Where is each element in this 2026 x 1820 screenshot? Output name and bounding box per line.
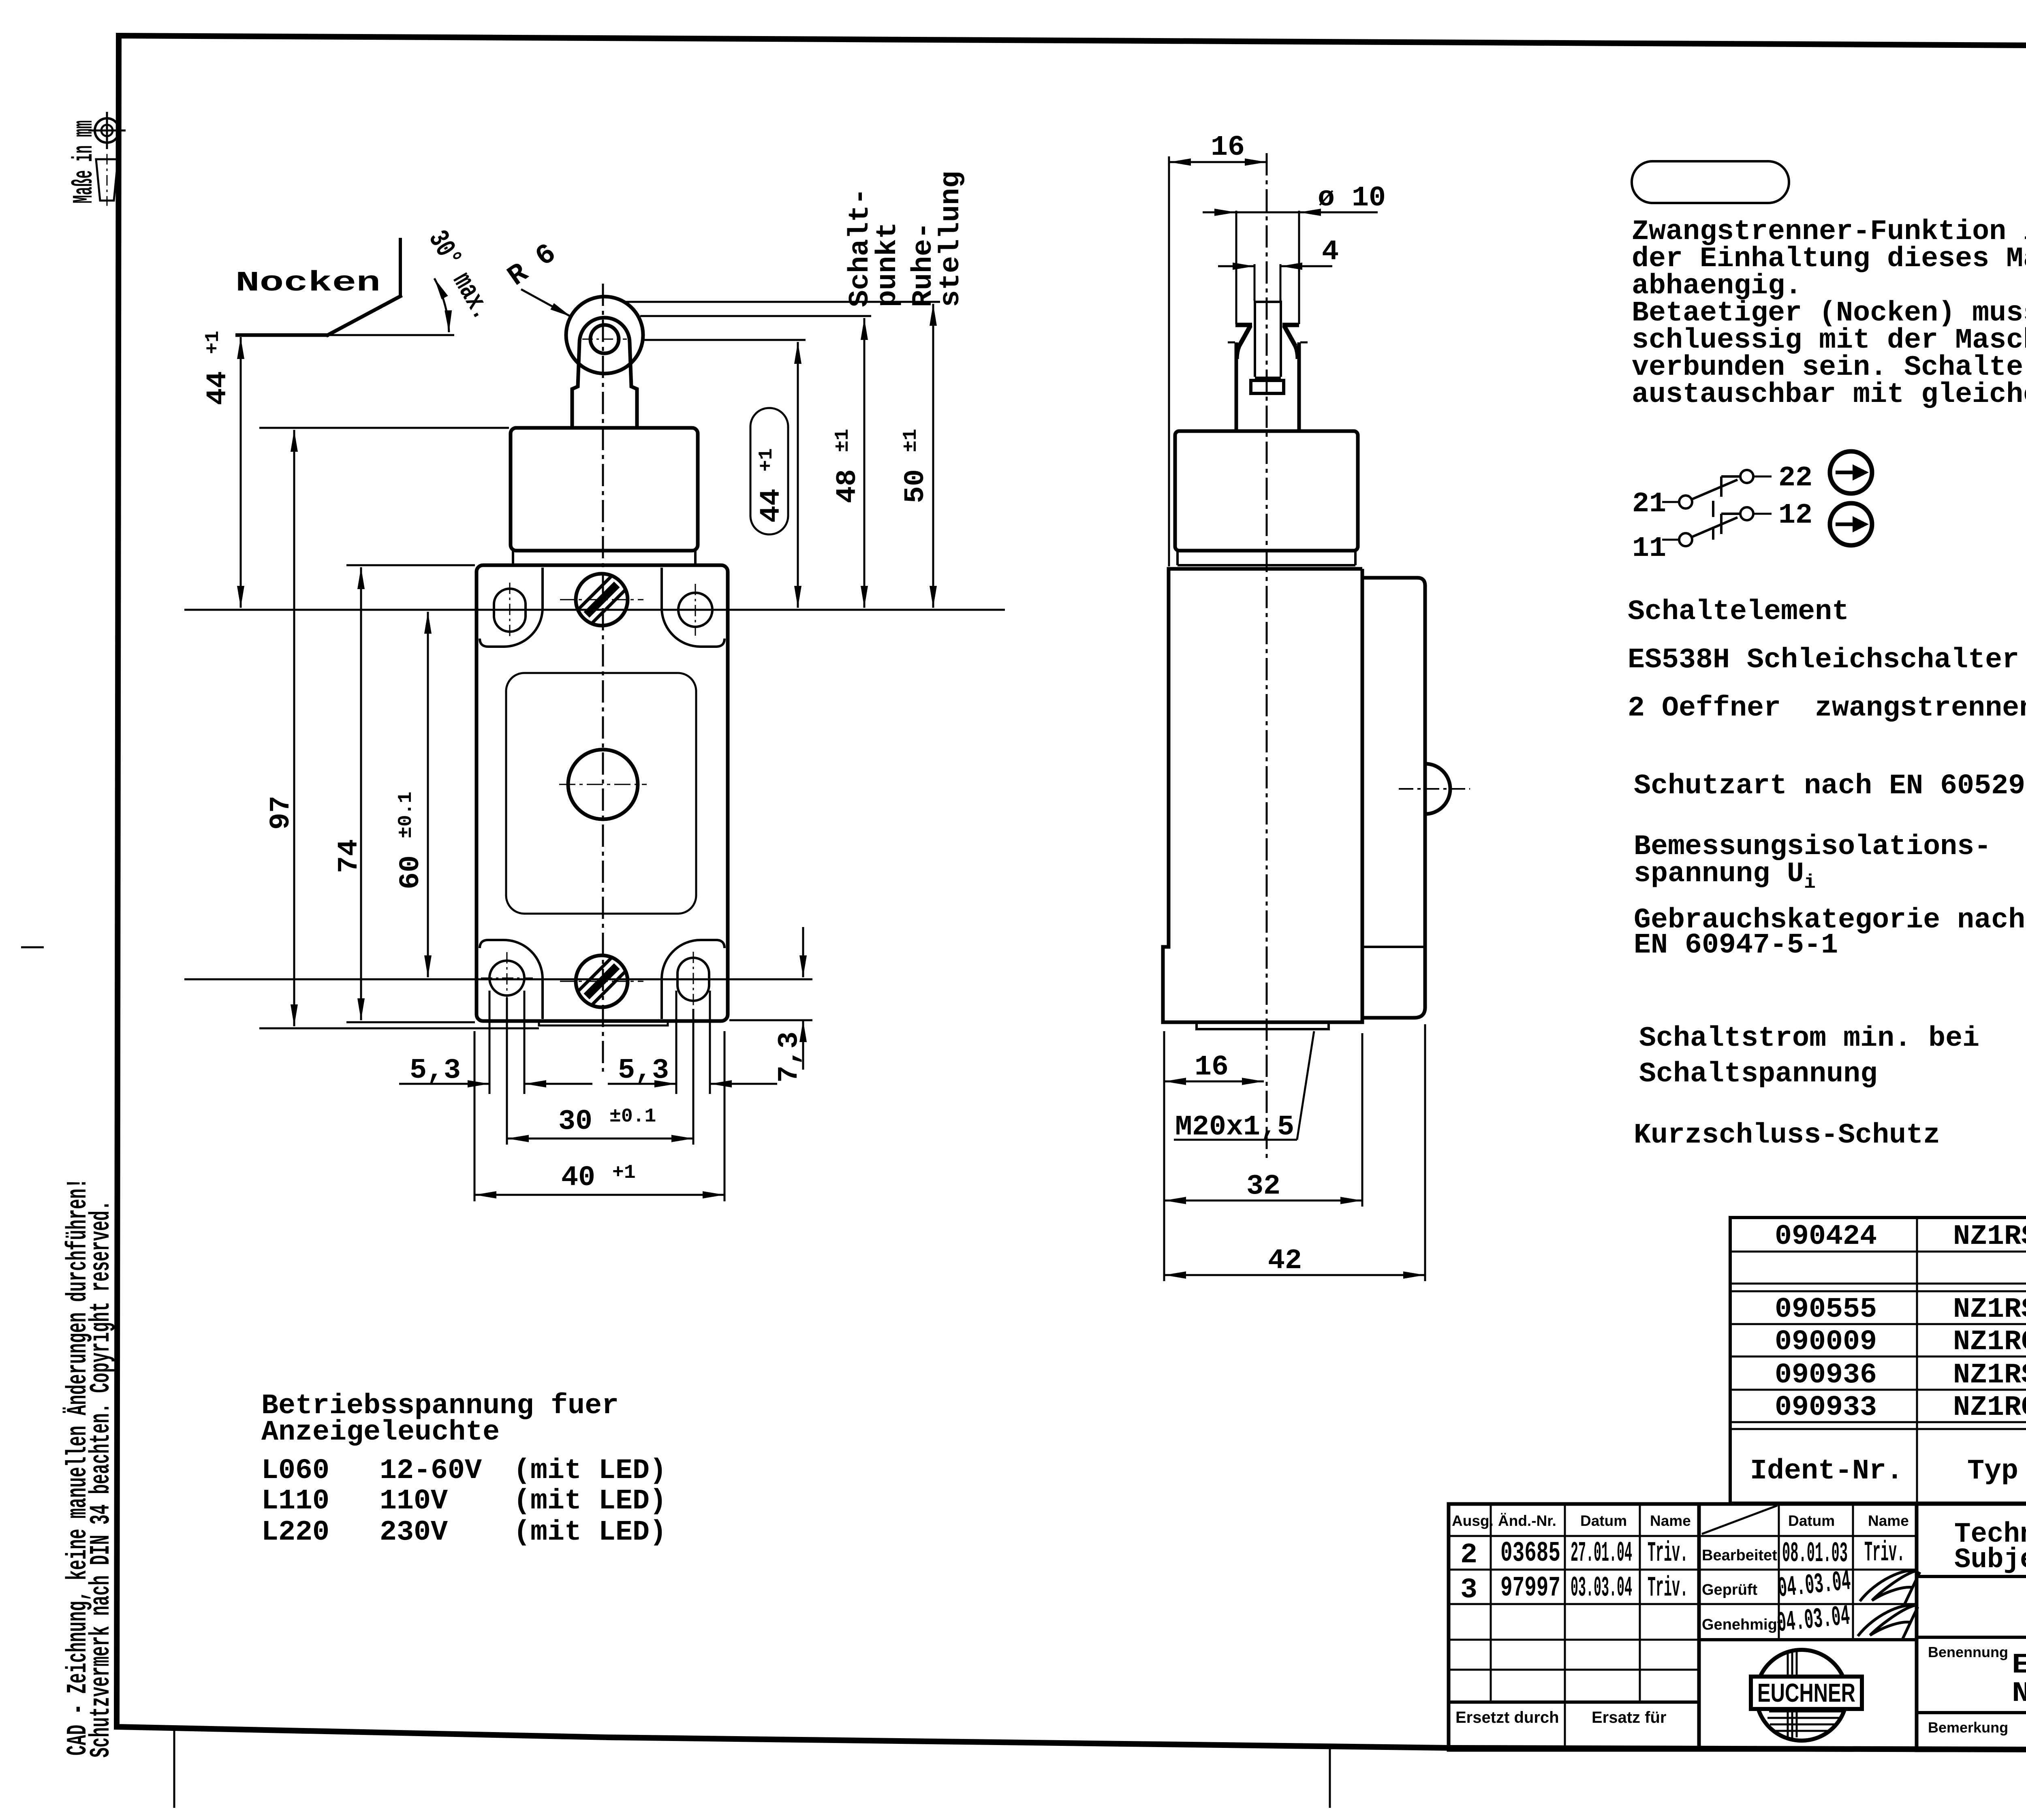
svg-text:Anzeigeleuchte: Anzeigeleuchte xyxy=(261,1416,500,1448)
svg-text:Triv.: Triv. xyxy=(1648,1572,1688,1604)
svg-text:NZ1RG-538-M: NZ1RG-538-M xyxy=(1953,1392,2026,1424)
svg-text:3: 3 xyxy=(1460,1574,1477,1606)
svg-text:ES538H Schleichschalter: ES538H Schleichschalter xyxy=(1628,644,2019,676)
svg-text:(mit LED): (mit LED) xyxy=(513,1485,667,1517)
svg-text:NZ1RG-538L060-M: NZ1RG-538L060-M xyxy=(1953,1326,2026,1358)
svg-text:EN 60947-5-1: EN 60947-5-1 xyxy=(1634,929,1838,961)
svg-text:97: 97 xyxy=(265,796,297,830)
svg-text:Schaltstrom min. bei: Schaltstrom min. bei xyxy=(1639,1023,1979,1055)
svg-text:Kurzschluss-Schutz: Kurzschluss-Schutz xyxy=(1634,1119,1940,1151)
svg-text:4: 4 xyxy=(1322,236,1339,268)
svg-text:Schaltspannung: Schaltspannung xyxy=(1639,1058,1877,1090)
svg-text:ø 10: ø 10 xyxy=(1318,182,1386,214)
svg-text:Bemerkung: Bemerkung xyxy=(1928,1719,2008,1736)
svg-text:12-60V: 12-60V xyxy=(380,1455,482,1487)
svg-text:12: 12 xyxy=(1778,500,1812,532)
svg-text:16: 16 xyxy=(1195,1051,1229,1083)
svg-text:03.03.04: 03.03.04 xyxy=(1571,1572,1632,1604)
svg-text:NZ1RS-538L060-M: NZ1RS-538L060-M xyxy=(1953,1294,2026,1326)
svg-text:Änd.-Nr.: Änd.-Nr. xyxy=(1498,1512,1556,1529)
svg-text:Ersatz für: Ersatz für xyxy=(1592,1709,1667,1726)
svg-text:Triv.: Triv. xyxy=(1864,1537,1905,1569)
svg-text:NZ1RS-538L060GE-M: NZ1RS-538L060GE-M xyxy=(1953,1221,2026,1253)
svg-text:L220: L220 xyxy=(261,1517,329,1549)
svg-text:Schaltelement: Schaltelement xyxy=(1628,596,1849,628)
svg-text:Datum: Datum xyxy=(1788,1512,1835,1529)
svg-text:Einzelgrenztaster: Einzelgrenztaster xyxy=(2012,1649,2026,1681)
svg-text:Maße in mm: Maße in mm xyxy=(68,120,100,203)
svg-text:Ausg.: Ausg. xyxy=(1452,1512,1494,1529)
svg-text:Schutzvermerk nach DIN 34 beac: Schutzvermerk nach DIN 34 beachten. Copy… xyxy=(85,1201,118,1758)
svg-text:spannung Ui: spannung Ui xyxy=(1634,858,1816,894)
svg-text:090936: 090936 xyxy=(1775,1359,1877,1391)
svg-text:090424: 090424 xyxy=(1775,1221,1877,1253)
svg-text:Benennung: Benennung xyxy=(1928,1644,2008,1660)
svg-text:Geprüft: Geprüft xyxy=(1702,1581,1758,1598)
svg-text:L110: L110 xyxy=(261,1485,329,1517)
svg-text:Schutzart nach EN 60529: Schutzart nach EN 60529 xyxy=(1634,770,2025,802)
svg-text:Name: Name xyxy=(1650,1512,1691,1529)
svg-text:090933: 090933 xyxy=(1775,1392,1877,1424)
svg-text:stellung: stellung xyxy=(935,171,967,307)
svg-text:03685: 03685 xyxy=(1500,1538,1560,1570)
svg-text:97997: 97997 xyxy=(1500,1572,1560,1604)
svg-text:32: 32 xyxy=(1246,1171,1280,1203)
svg-text:230V: 230V xyxy=(380,1517,448,1549)
svg-text:L060: L060 xyxy=(261,1455,329,1487)
svg-text:Typ: Typ xyxy=(1967,1455,2018,1487)
svg-text:090009: 090009 xyxy=(1775,1326,1877,1358)
svg-text:punkt: punkt xyxy=(872,222,904,307)
svg-text:Bearbeitet: Bearbeitet xyxy=(1702,1547,1777,1564)
svg-text:74: 74 xyxy=(333,839,365,873)
svg-text:NZ1RS-538-M: NZ1RS-538-M xyxy=(1953,1359,2026,1391)
svg-text:27.01.04: 27.01.04 xyxy=(1571,1538,1632,1570)
svg-text:austauschbar mit gleichem Typ.: austauschbar mit gleichem Typ. xyxy=(1632,379,2026,411)
svg-text:Name: Name xyxy=(1868,1512,1909,1529)
svg-text:(mit LED): (mit LED) xyxy=(513,1517,667,1549)
svg-text:5,3: 5,3 xyxy=(618,1055,669,1087)
svg-text:(mit LED): (mit LED) xyxy=(513,1455,667,1487)
svg-text:Nocken: Nocken xyxy=(235,267,380,299)
svg-text:Triv.: Triv. xyxy=(1648,1538,1688,1570)
svg-text:Ident-Nr.: Ident-Nr. xyxy=(1750,1455,1903,1487)
svg-text:M20x1,5: M20x1,5 xyxy=(1175,1111,1294,1143)
svg-text:110V: 110V xyxy=(380,1485,448,1517)
svg-text:2: 2 xyxy=(1460,1539,1477,1571)
svg-text:08.01.03: 08.01.03 xyxy=(1782,1538,1848,1570)
svg-text:NZ1R.-538....-M: NZ1R.-538....-M xyxy=(2012,1678,2026,1710)
svg-text:22: 22 xyxy=(1778,462,1812,494)
svg-text:Subject to technical modificat: Subject to technical modifications xyxy=(1954,1544,2026,1576)
svg-text:21: 21 xyxy=(1632,488,1666,520)
svg-text:7,3: 7,3 xyxy=(774,1032,806,1083)
svg-text:11: 11 xyxy=(1632,533,1666,565)
svg-text:2 Oeffner: 2 Oeffner xyxy=(1628,692,1781,724)
svg-text:Datum: Datum xyxy=(1580,1512,1627,1529)
svg-text:090555: 090555 xyxy=(1775,1294,1877,1326)
svg-text:42: 42 xyxy=(1268,1245,1302,1277)
svg-text:5,3: 5,3 xyxy=(410,1055,461,1087)
svg-text:16: 16 xyxy=(1211,132,1245,164)
svg-text:zwangstrennend: zwangstrennend xyxy=(1815,692,2026,724)
svg-text:Genehmigt: Genehmigt xyxy=(1702,1616,1782,1633)
svg-text:EUCHNER: EUCHNER xyxy=(1757,1678,1855,1707)
svg-text:Ersetzt durch: Ersetzt durch xyxy=(1455,1709,1559,1726)
